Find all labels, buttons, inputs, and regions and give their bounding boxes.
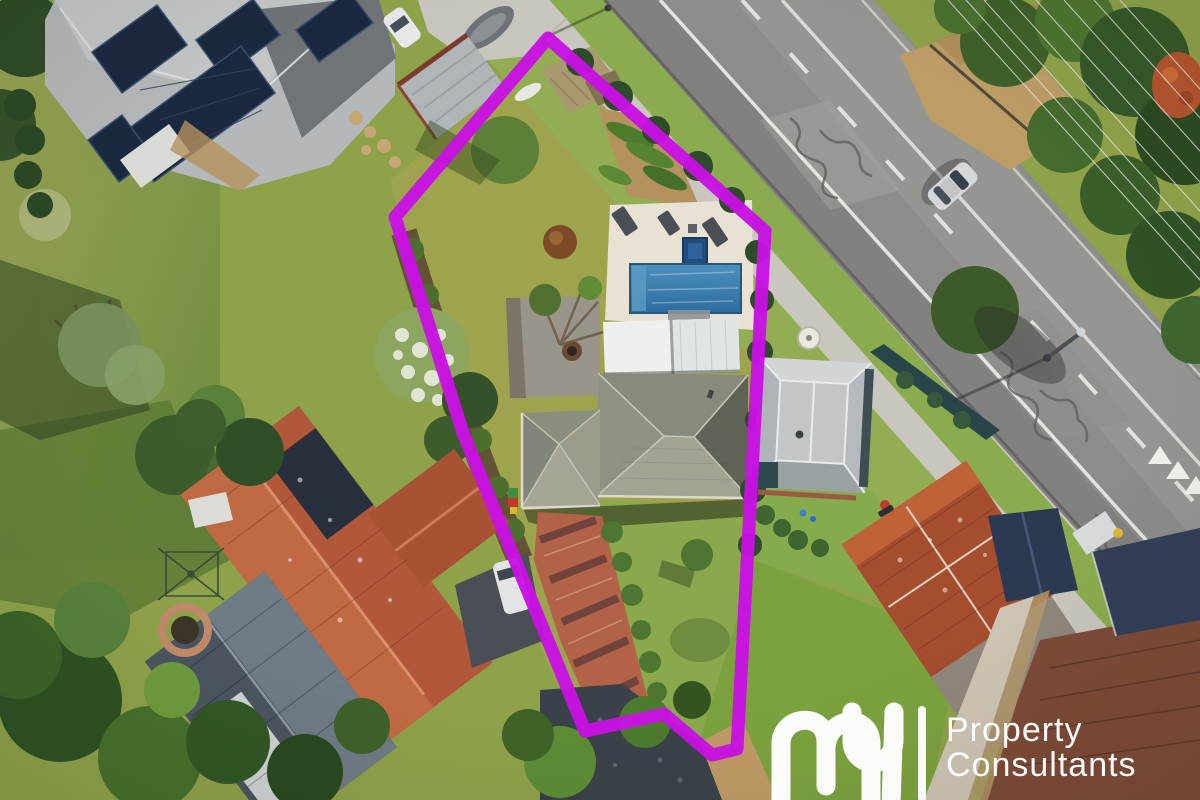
watermark-line1: Property: [946, 711, 1083, 749]
brand-divider: [918, 706, 926, 800]
aerial-property-photo: Property Consultants: [0, 0, 1200, 800]
watermark-line2: Consultants: [946, 746, 1137, 784]
photo-vignette: [0, 0, 1200, 800]
